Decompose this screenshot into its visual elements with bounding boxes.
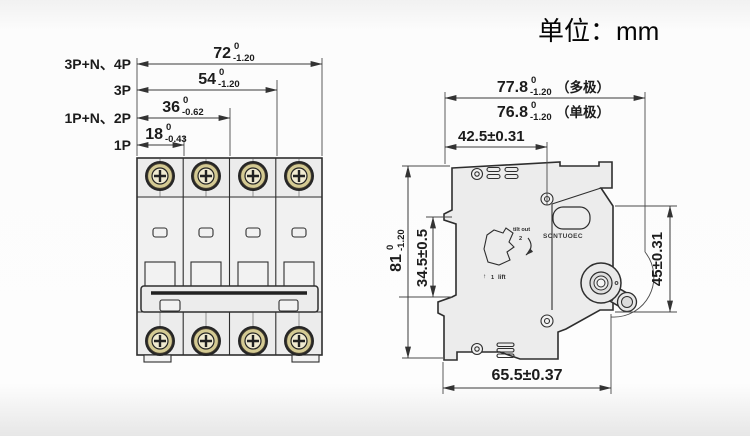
screw: [191, 326, 221, 356]
svg-text:0: 0: [531, 75, 536, 86]
dim-778-value: 77.8 0 -1.20 （多极）: [497, 75, 610, 98]
lift-arrow: ↑: [483, 273, 486, 280]
svg-text:0: 0: [183, 95, 188, 106]
lift-step-number: 1: [491, 275, 494, 281]
dim-54-value: 54 0 -1.20: [198, 67, 239, 90]
pole-label-3p: 3P: [114, 82, 131, 98]
dim-18-value: 18 0 -0.43: [145, 122, 186, 145]
pole-label-2p: 1P+N、2P: [64, 110, 131, 126]
breaker-dimension-diagram: 72 0 -1.20 54 0 -1.20 36 0 -0.62 18 0 -0…: [0, 0, 750, 436]
svg-text:（单极）: （单极）: [556, 104, 610, 120]
diagram-svg: 72 0 -1.20 54 0 -1.20 36 0 -0.62 18 0 -0…: [0, 0, 750, 436]
svg-text:-0.43: -0.43: [165, 134, 187, 145]
tilt-step-number: 2: [519, 236, 522, 242]
dim-45-value: 45±0.31: [649, 232, 666, 286]
side-body: [438, 162, 613, 360]
svg-text:（多极）: （多极）: [556, 79, 610, 95]
front-foot-right: [292, 355, 319, 362]
svg-text:0: 0: [385, 245, 396, 250]
svg-text:-1.20: -1.20: [396, 229, 407, 251]
front-dimensions: 72 0 -1.20 54 0 -1.20 36 0 -0.62 18 0 -0…: [64, 41, 322, 156]
screw: [238, 326, 268, 356]
svg-text:77.8: 77.8: [497, 79, 528, 96]
side-view: SONTUOEC tilt out 2 ↑ 1 lift: [438, 162, 637, 360]
unit-label: 单位：mm: [538, 16, 659, 46]
svg-text:0: 0: [531, 100, 536, 111]
lift-label: lift: [498, 274, 506, 281]
svg-text:0: 0: [234, 41, 239, 52]
front-view: [137, 158, 322, 362]
dim-655-value: 65.5±0.37: [491, 367, 562, 384]
svg-text:18: 18: [145, 126, 163, 143]
screw: [238, 161, 268, 191]
brand-text: SONTUOEC: [543, 233, 583, 240]
dim-36-value: 36 0 -0.62: [162, 95, 203, 118]
pole-label-1p: 1P: [114, 137, 131, 153]
label-pill: [553, 207, 590, 229]
svg-text:54: 54: [198, 71, 216, 88]
svg-text:76.8: 76.8: [497, 104, 528, 121]
svg-text:81: 81: [388, 254, 405, 272]
tilt-out-label: tilt out: [513, 227, 530, 233]
svg-text:45±0.31: 45±0.31: [649, 232, 666, 286]
svg-text:0: 0: [166, 122, 171, 133]
dim-72-value: 72 0 -1.20: [213, 41, 254, 64]
dim-345-value: 34.5±0.5: [414, 229, 431, 287]
screw: [284, 161, 314, 191]
svg-text:0: 0: [219, 67, 224, 78]
front-foot-left: [144, 355, 171, 362]
svg-text:-1.20: -1.20: [530, 112, 552, 123]
svg-text:-1.20: -1.20: [233, 53, 255, 64]
svg-text:34.5±0.5: 34.5±0.5: [414, 229, 431, 287]
screw: [145, 326, 175, 356]
svg-text:36: 36: [162, 99, 180, 116]
pole-label-4p: 3P+N、4P: [64, 56, 131, 72]
dim-81-value: 81 0 -1.20: [385, 229, 407, 272]
screw: [145, 161, 175, 191]
screw: [284, 326, 314, 356]
svg-text:72: 72: [213, 45, 231, 62]
screw: [191, 161, 221, 191]
svg-text:-1.20: -1.20: [530, 87, 552, 98]
dim-425-value: 42.5±0.31: [458, 128, 525, 145]
svg-text:-1.20: -1.20: [218, 79, 240, 90]
handle-tie-bar: [141, 286, 318, 312]
dim-768-value: 76.8 0 -1.20 （单极）: [497, 100, 610, 123]
svg-text:-0.62: -0.62: [182, 107, 204, 118]
